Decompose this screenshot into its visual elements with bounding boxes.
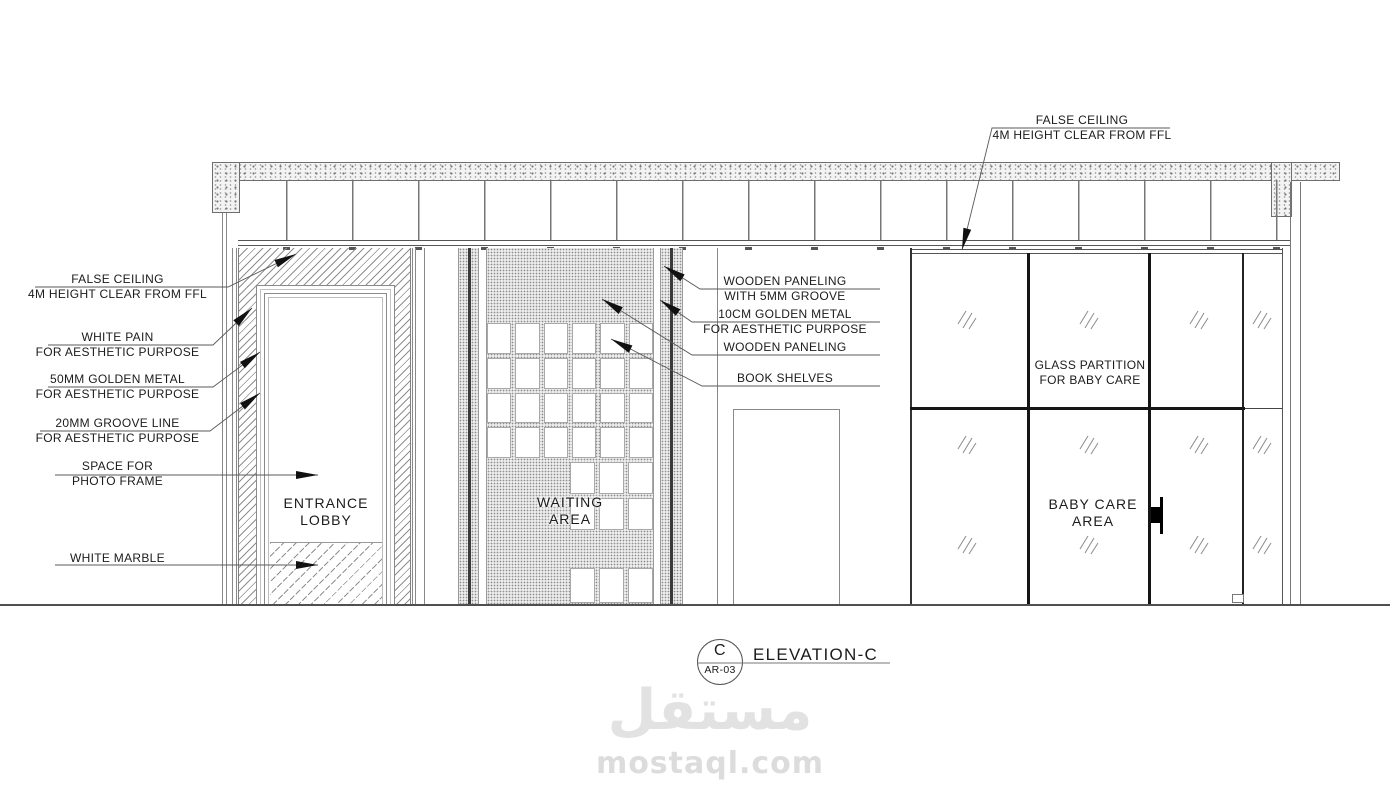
- annotation-50mm-golden-metal: 50MM GOLDEN METALFOR AESTHETIC PURPOSE: [25, 372, 210, 401]
- annotation-wooden-paneling: WOODEN PANELING: [692, 340, 878, 355]
- annotation-false-ceiling-left: FALSE CEILING4M HEIGHT CLEAR FROM FFL: [25, 272, 210, 301]
- annotation-10cm-golden-metal: 10CM GOLDEN METALFOR AESTHETIC PURPOSE: [692, 307, 878, 336]
- annotation-space-for-photo-frame: SPACE FORPHOTO FRAME: [25, 459, 210, 488]
- annotation-white-pain: WHITE PAINFOR AESTHETIC PURPOSE: [25, 330, 210, 359]
- drawing-title: ELEVATION-C: [753, 645, 878, 665]
- annotation-20mm-groove-line: 20MM GROOVE LINEFOR AESTHETIC PURPOSE: [25, 416, 210, 445]
- waiting-area-label: WAITINGAREA: [487, 494, 653, 528]
- glass-partition-label: GLASS PARTITIONFOR BABY CARE: [1020, 358, 1160, 387]
- leader-lines: [0, 0, 1400, 793]
- baby-care-area-label: BABY CAREAREA: [1018, 496, 1168, 530]
- annotation-book-shelves: BOOK SHELVES: [692, 371, 878, 386]
- entrance-lobby-label: ENTRANCELOBBY: [256, 495, 396, 529]
- elevation-drawing-canvas: مستقل mostaql.com: [0, 0, 1400, 793]
- annotation-wooden-paneling-groove: WOODEN PANELINGWITH 5MM GROOVE: [692, 274, 878, 303]
- annotation-false-ceiling-top: FALSE CEILING4M HEIGHT CLEAR FROM FFL: [992, 113, 1172, 142]
- annotation-white-marble: WHITE MARBLE: [25, 551, 210, 566]
